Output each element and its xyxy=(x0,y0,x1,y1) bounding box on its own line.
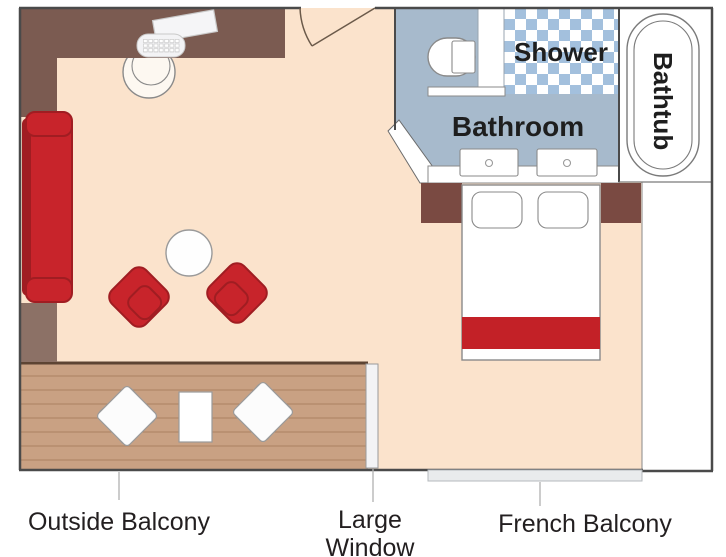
large-window-label-line1: Large xyxy=(338,506,402,534)
remote-control-icon xyxy=(137,34,185,57)
shower-label: Shower xyxy=(514,37,608,67)
coffee-table xyxy=(166,230,212,276)
nightstand-right xyxy=(601,183,641,223)
bed-blanket xyxy=(462,317,600,349)
pillow-right xyxy=(538,192,588,228)
sofa xyxy=(22,112,72,302)
outside-strip xyxy=(642,182,712,471)
french-balcony-label: French Balcony xyxy=(498,510,672,538)
french-balcony-window xyxy=(428,470,642,481)
large-window xyxy=(366,364,378,468)
shower-partition-wall xyxy=(478,8,504,96)
sink-right xyxy=(537,149,597,176)
large-window-label-line2: Window xyxy=(326,534,416,557)
bathtub-label: Bathtub xyxy=(648,52,678,150)
nightstand-left xyxy=(421,183,462,223)
floor-plan-page: Shower Bathroom Bathtub Outside Balcony … xyxy=(0,0,726,557)
stateroom-floor-plan: Shower Bathroom Bathtub Outside Balcony … xyxy=(0,0,726,557)
balcony-table xyxy=(179,392,212,442)
wall-segment-lower-left xyxy=(20,303,57,362)
pillow-left xyxy=(472,192,522,228)
sink-left xyxy=(460,149,518,176)
outside-balcony-label: Outside Balcony xyxy=(28,508,211,536)
bed xyxy=(462,185,600,360)
toilet-ledge xyxy=(428,87,505,96)
toilet-icon xyxy=(428,38,475,76)
bathroom-label: Bathroom xyxy=(452,111,584,142)
wardrobe-wall-segment xyxy=(20,58,57,117)
